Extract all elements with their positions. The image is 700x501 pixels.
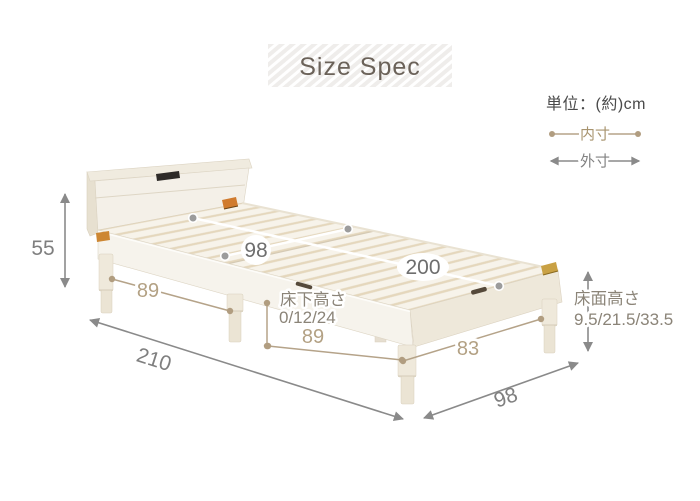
dim-dot [264, 300, 270, 306]
dim-dot [227, 308, 233, 314]
dim-inner-width-label: 98 [244, 239, 267, 262]
floor-height-title: 床面高さ [574, 289, 640, 308]
dim-dot [344, 225, 353, 234]
legend-outer-label: 外寸 [580, 153, 610, 170]
dim-outer-width: 98 [424, 363, 578, 418]
legend-inner: 内寸 [549, 126, 641, 143]
dim-dot [495, 282, 504, 291]
bed-leg-head-front [99, 254, 113, 313]
floor-height-values: 9.5/21.5/33.5 [574, 310, 673, 329]
legend-inner-label: 内寸 [580, 126, 610, 143]
dim-outer-width-label: 98 [491, 383, 521, 412]
dim-dot [109, 276, 115, 282]
legend-inner-dot [635, 131, 641, 137]
under-bed-values: 0/12/24 [279, 308, 336, 327]
legend-outer: 外寸 [551, 153, 639, 170]
dim-outer-length: 210 [90, 320, 403, 419]
dim-dot [189, 214, 198, 223]
dim-front-leg-span-label: 89 [302, 326, 324, 348]
bed-leg-mid-front [227, 294, 243, 342]
legend-inner-dot [549, 131, 555, 137]
bed-leg-foot-front [398, 345, 416, 404]
dim-dot [221, 252, 230, 261]
dim-inner-length-label: 200 [405, 256, 440, 279]
under-bed-title: 床下高さ [280, 290, 346, 309]
dim-dot [264, 343, 270, 349]
dim-dot [538, 316, 544, 322]
dim-foot-leg-span-label: 83 [457, 338, 479, 360]
size-spec-diagram: 200 98 89 89 83 床下高さ 0/12/24 55 [0, 0, 700, 501]
dim-head-leg-span-label: 89 [137, 280, 159, 302]
unit-note: 単位：(約)cm [546, 95, 646, 113]
dim-outer-length-label: 210 [134, 344, 174, 376]
title-box: Size Spec [268, 44, 452, 87]
size-spec-canvas: 200 98 89 89 83 床下高さ 0/12/24 55 [0, 0, 700, 501]
dim-dot [400, 358, 406, 364]
dim-headboard-height: 55 [31, 194, 65, 287]
bed-leg-foot-back [542, 299, 557, 353]
dim-headboard-height-label: 55 [31, 237, 54, 260]
dim-floor-surface-height: 床面高さ 9.5/21.5/33.5 [574, 272, 673, 351]
page-title: Size Spec [299, 53, 421, 81]
